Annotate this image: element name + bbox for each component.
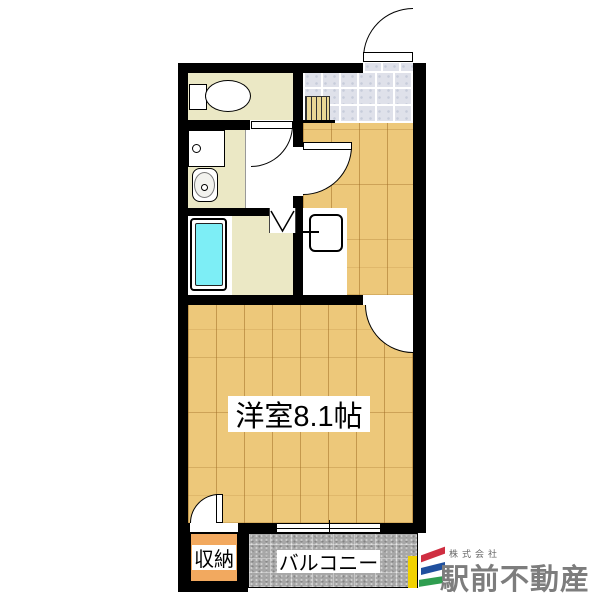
entrance-door-leaf (363, 52, 413, 62)
main-room-door-opening (363, 295, 413, 305)
entrance-door-swing (363, 8, 413, 58)
toilet-bowl-icon (205, 80, 251, 112)
logo: 株式会社 駅前不動産 (400, 540, 600, 600)
closet-label-text: 収納 (194, 543, 234, 572)
logo-company-name: 駅前不動産 (440, 556, 590, 598)
main-room-label-text: 洋室8.1帖 (235, 393, 362, 435)
bathtub-water (195, 223, 223, 286)
toilet-door-leaf (251, 121, 293, 129)
kitchen-door-leaf (303, 142, 352, 150)
logo-bar-yellow-icon (408, 556, 417, 588)
kitchen-door-opening (293, 147, 303, 196)
closet-label: 収納 (192, 545, 236, 570)
kitchen-sink-icon (309, 214, 343, 252)
balcony-label-text: バルコニー (279, 547, 379, 576)
bath-folding-door-v-icon (270, 208, 295, 233)
kitchen-faucet-icon (303, 231, 319, 233)
vanity-drain-icon (201, 184, 208, 191)
balcony-window (277, 523, 380, 533)
floor-plan: 洋室8.1帖 収納 バルコニー 株式会社 駅前不動産 (0, 0, 600, 600)
entrance-step (305, 96, 330, 122)
balcony-label: バルコニー (277, 550, 380, 573)
entrance-tile-threshold (363, 63, 413, 73)
main-room-label: 洋室8.1帖 (228, 396, 370, 432)
closet-door-leaf (216, 494, 223, 523)
bath-folding-door (269, 208, 296, 233)
washing-machine-door-icon (192, 144, 201, 153)
